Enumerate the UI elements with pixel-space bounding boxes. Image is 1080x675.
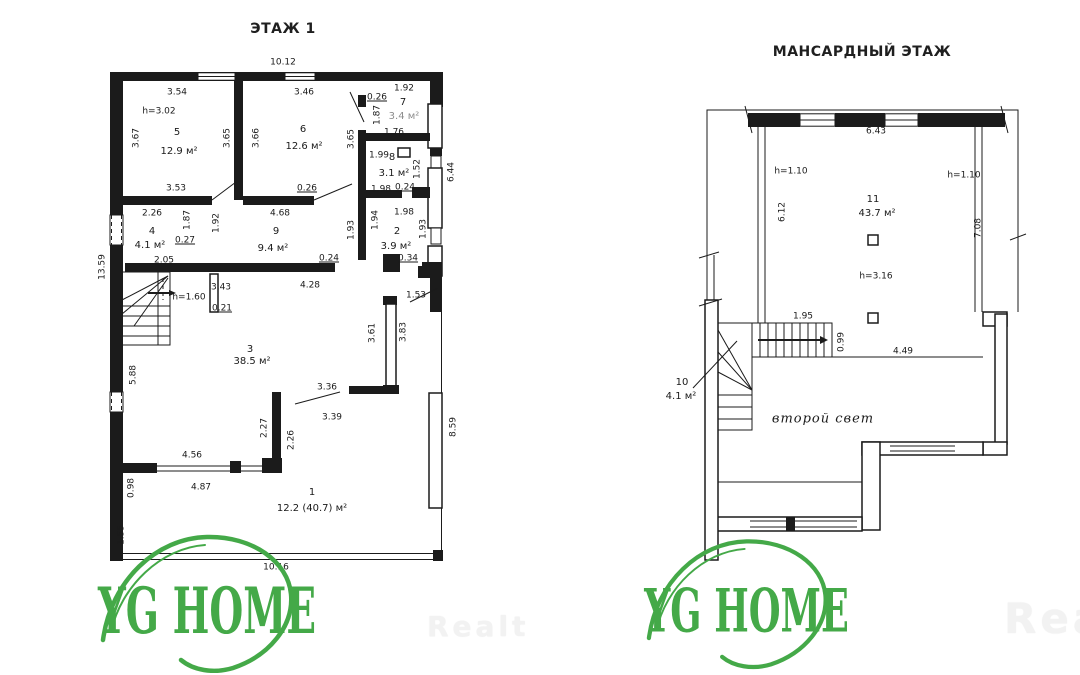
room-number: 9 (273, 227, 279, 237)
dim-label: 1.52 (414, 159, 423, 179)
dim-label: h=1.60 (172, 294, 205, 303)
dim-label: h=3.16 (859, 273, 892, 282)
dim-label: 3.83 (400, 322, 409, 342)
dim-label: 1.99 (369, 152, 389, 161)
room-number: 10 (676, 378, 689, 388)
room-area: 3.4 м² (389, 112, 420, 122)
dim-label: 10.12 (270, 59, 296, 68)
dim-label: 1.92 (394, 85, 414, 94)
dim-label: 0.26 (367, 94, 387, 103)
room-number: 5 (174, 128, 180, 138)
realt-watermark: Realt (1004, 594, 1080, 643)
dim-label: 1.76 (384, 129, 404, 138)
logo-text: YG HOME (97, 574, 316, 648)
dim-label: 13.59 (99, 254, 108, 280)
dim-label: 1.93 (348, 220, 357, 240)
dim-label: 6.12 (779, 202, 788, 222)
dim-label: 1.95 (793, 313, 813, 322)
floor1-title: ЭТАЖ 1 (250, 21, 315, 37)
dim-label: 0.27 (175, 237, 195, 246)
dim-label: 4.87 (191, 484, 211, 493)
dim-label: 1.98 (371, 186, 391, 195)
dim-label: h=3.02 (142, 108, 175, 117)
room-number: 8 (389, 153, 395, 163)
room-area: 4.1 м² (666, 392, 697, 402)
dim-label: 3.53 (166, 185, 186, 194)
dim-label: 4.56 (182, 452, 202, 461)
floor1-stairs (122, 272, 176, 345)
dim-label: 1.87 (184, 210, 193, 230)
room-number: 6 (300, 125, 306, 135)
dim-label: 1.93 (420, 219, 429, 239)
dim-label: 2.26 (288, 430, 297, 450)
floorplan-page: ЭТАЖ 1 МАНСАРДНЫЙ ЭТАЖ 10.123.543.460.26… (0, 0, 1080, 675)
dim-label: 6.44 (448, 162, 457, 182)
dim-label: 1.87 (374, 105, 383, 125)
dim-label: 1.94 (372, 210, 381, 230)
dim-label: 3.46 (294, 89, 314, 98)
room-area: 9.4 м² (258, 244, 289, 254)
realt-watermark: Realt (427, 610, 529, 643)
dim-label: 3.43 (211, 284, 231, 293)
dim-label: 0.24 (395, 184, 415, 193)
dim-label: 0.24 (319, 255, 339, 264)
dim-label: 3.61 (369, 323, 378, 343)
dim-label: 4.68 (270, 210, 290, 219)
room-number: 11 (867, 195, 880, 205)
dim-label: 0.21 (212, 305, 232, 314)
dim-label: 0.98 (128, 478, 137, 498)
dim-label: 2.05 (154, 257, 174, 266)
dim-label: 3.65 (348, 129, 357, 149)
dim-label: 3.66 (253, 128, 262, 148)
dim-label: 7.08 (975, 218, 984, 238)
dim-label: 8.59 (450, 417, 459, 437)
dim-label: 3.36 (317, 384, 337, 393)
dim-label: 2.27 (261, 418, 270, 438)
dim-label: 6.43 (866, 128, 886, 137)
floor2-title: МАНСАРДНЫЙ ЭТАЖ (773, 44, 951, 60)
dim-label: 3.67 (133, 128, 142, 148)
yg-home-logo: YG HOME (632, 532, 862, 670)
logo-text: YG HOME (644, 576, 849, 646)
dim-label: 1.92 (213, 213, 222, 233)
room-number: 3 (247, 345, 253, 355)
yg-home-logo: YG HOME (85, 528, 330, 673)
dim-label: h=1.10 (947, 172, 980, 181)
dim-label: h=1.10 (774, 168, 807, 177)
dim-label: 4.49 (893, 348, 913, 357)
dim-label: 2.26 (142, 210, 162, 219)
room-area: 12.9 м² (161, 147, 198, 157)
room-number: 1 (309, 488, 315, 498)
dim-label: 0.34 (398, 255, 418, 264)
second-light-label: второй свет (772, 413, 874, 426)
dim-label: 3.54 (167, 89, 187, 98)
dim-label: 4.28 (300, 282, 320, 291)
room-number: 2 (394, 227, 400, 237)
room-area: 12.2 (40.7) м² (277, 504, 347, 514)
dim-label: 0.26 (297, 185, 317, 194)
room-area: 12.6 м² (286, 142, 323, 152)
room-area: 43.7 м² (859, 209, 896, 219)
dim-label: 0.99 (838, 332, 847, 352)
room-area: 38.5 м² (234, 357, 271, 367)
dim-label: 5.88 (130, 365, 139, 385)
dim-label: 3.65 (224, 128, 233, 148)
room-number: 7 (400, 98, 406, 108)
room-area: 3.1 м² (379, 169, 410, 179)
dim-label: 1.98 (394, 209, 414, 218)
room-number: 4 (149, 227, 155, 237)
dim-label: 3.39 (322, 414, 342, 423)
room-area: 4.1 м² (135, 241, 166, 251)
room-area: 3.9 м² (381, 242, 412, 252)
dim-label: 1.53 (406, 292, 426, 301)
